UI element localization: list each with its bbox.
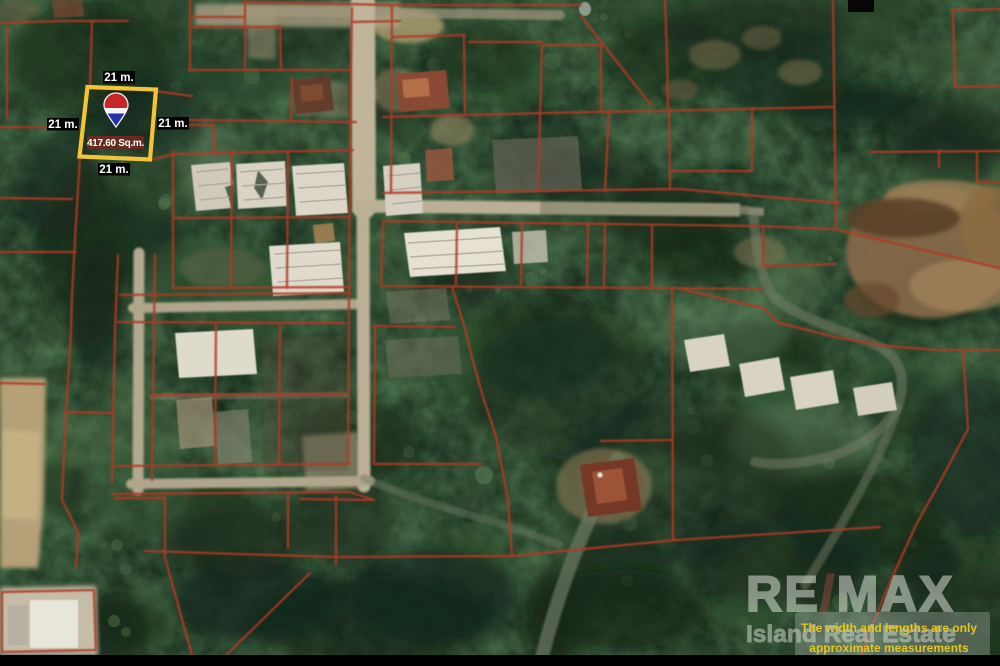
svg-text:The width and lengths are only: The width and lengths are only: [801, 621, 977, 635]
svg-text:417.60 Sq.m.: 417.60 Sq.m.: [87, 138, 145, 149]
svg-text:21 m.: 21 m.: [158, 118, 187, 130]
svg-text:21 m.: 21 m.: [48, 119, 77, 131]
svg-text:21 m.: 21 m.: [99, 164, 128, 176]
svg-text:21 m.: 21 m.: [104, 72, 133, 84]
svg-text:approximate measurements: approximate measurements: [809, 641, 969, 655]
